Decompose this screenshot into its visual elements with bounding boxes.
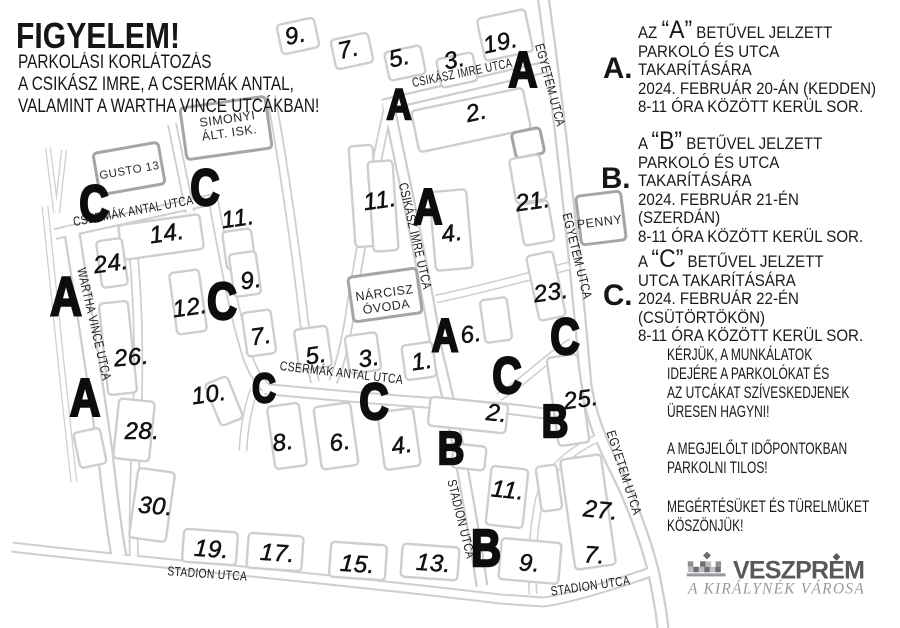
- svg-text:7.: 7.: [583, 541, 606, 569]
- svg-text:26.: 26.: [112, 343, 150, 373]
- svg-text:C: C: [359, 373, 388, 430]
- svg-text:9.: 9.: [239, 266, 264, 296]
- svg-text:C: C: [252, 364, 276, 410]
- svg-text:4.: 4.: [390, 431, 415, 461]
- svg-text:A: A: [432, 309, 459, 361]
- svg-text:23.: 23.: [531, 277, 570, 309]
- svg-text:5.: 5.: [304, 341, 329, 371]
- svg-text:B: B: [471, 519, 501, 578]
- svg-text:21.: 21.: [513, 186, 552, 218]
- svg-text:30.: 30.: [137, 492, 174, 522]
- svg-text:14.: 14.: [148, 218, 186, 250]
- svg-text:13.: 13.: [415, 549, 452, 578]
- svg-text:1.: 1.: [410, 347, 435, 377]
- svg-text:A KIRÁLYNÉK VÁROSA: A KIRÁLYNÉK VÁROSA: [687, 581, 865, 598]
- svg-text:A: A: [414, 179, 443, 235]
- svg-text:3.: 3.: [441, 45, 467, 76]
- svg-text:11.: 11.: [490, 475, 526, 505]
- svg-text:C: C: [190, 159, 219, 216]
- svg-text:C: C: [492, 347, 521, 404]
- svg-text:A: A: [509, 42, 538, 98]
- svg-text:15.: 15.: [339, 550, 376, 579]
- svg-text:7.: 7.: [249, 322, 274, 352]
- svg-text:B: B: [542, 395, 569, 447]
- svg-text:A: A: [387, 81, 412, 128]
- svg-text:11.: 11.: [220, 203, 257, 234]
- svg-text:17.: 17.: [259, 539, 296, 568]
- svg-text:4.: 4.: [440, 219, 465, 249]
- svg-text:C: C: [207, 272, 237, 331]
- svg-text:28.: 28.: [124, 418, 160, 445]
- svg-text:10.: 10.: [190, 379, 228, 411]
- svg-text:12.: 12.: [171, 292, 209, 324]
- svg-text:6.: 6.: [459, 320, 484, 350]
- svg-text:3.: 3.: [357, 344, 382, 374]
- svg-text:C: C: [79, 175, 108, 232]
- svg-text:C: C: [550, 308, 579, 365]
- svg-text:19.: 19.: [193, 535, 230, 564]
- svg-text:27.: 27.: [581, 495, 620, 526]
- svg-text:8.: 8.: [271, 428, 296, 458]
- svg-text:A: A: [50, 265, 82, 327]
- svg-text:24.: 24.: [91, 248, 130, 280]
- svg-text:11.: 11.: [362, 185, 399, 216]
- svg-text:6.: 6.: [328, 428, 353, 458]
- svg-text:EGYETEM UTCA: EGYETEM UTCA: [532, 42, 568, 128]
- svg-text:A: A: [70, 370, 101, 429]
- svg-text:B: B: [438, 422, 465, 474]
- svg-text:9.: 9.: [518, 549, 541, 577]
